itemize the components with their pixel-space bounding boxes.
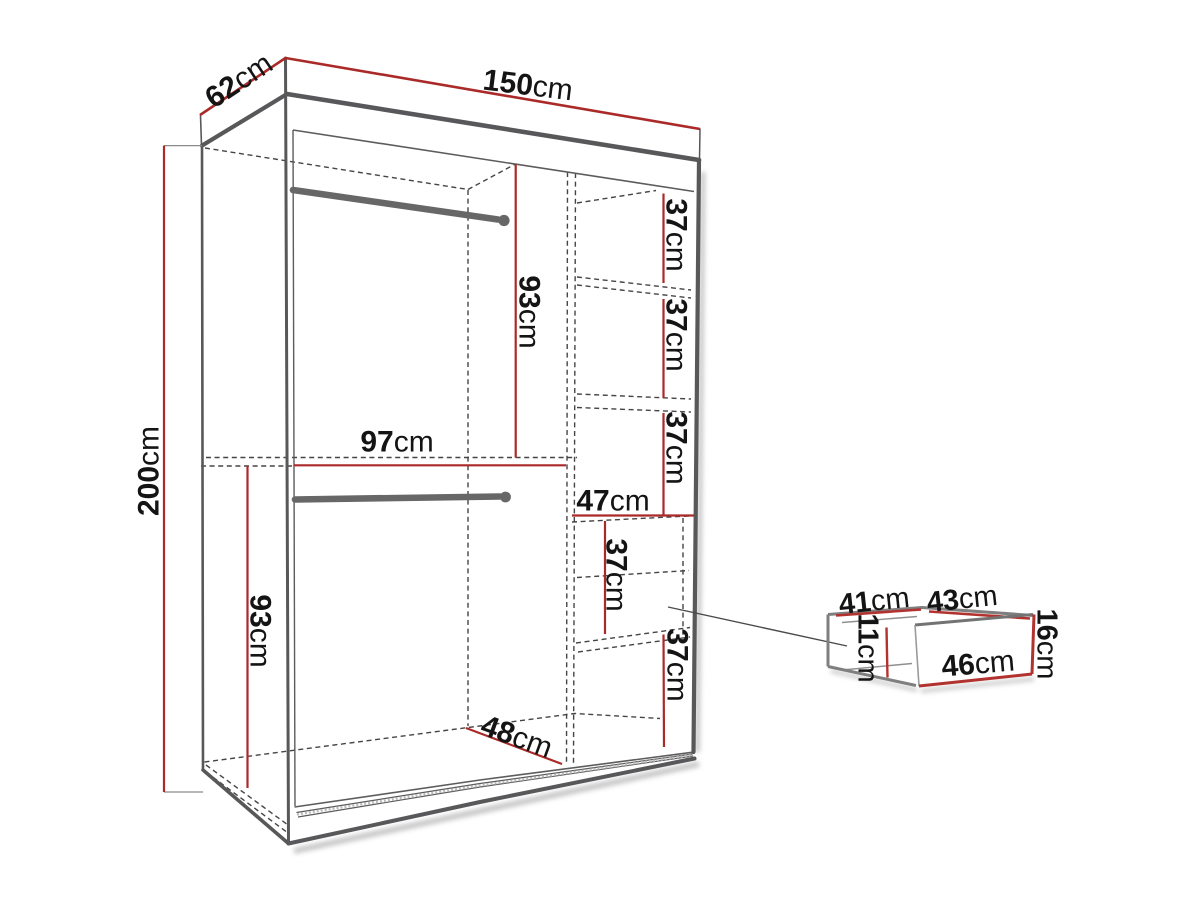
svg-text:150cm: 150cm	[481, 64, 574, 108]
svg-text:200cm: 200cm	[133, 426, 166, 516]
svg-text:48cm: 48cm	[477, 709, 557, 765]
svg-text:11cm: 11cm	[852, 613, 884, 682]
svg-text:97cm: 97cm	[360, 426, 433, 459]
svg-text:37cm: 37cm	[600, 538, 633, 611]
svg-text:37cm: 37cm	[660, 298, 693, 371]
svg-text:47cm: 47cm	[576, 485, 649, 518]
svg-text:16cm: 16cm	[1031, 609, 1063, 680]
svg-text:37cm: 37cm	[660, 411, 693, 484]
svg-text:93cm: 93cm	[513, 275, 546, 348]
svg-text:93cm: 93cm	[244, 594, 277, 667]
svg-text:46cm: 46cm	[940, 644, 1016, 683]
svg-text:37cm: 37cm	[661, 628, 694, 701]
svg-text:37cm: 37cm	[660, 198, 693, 271]
